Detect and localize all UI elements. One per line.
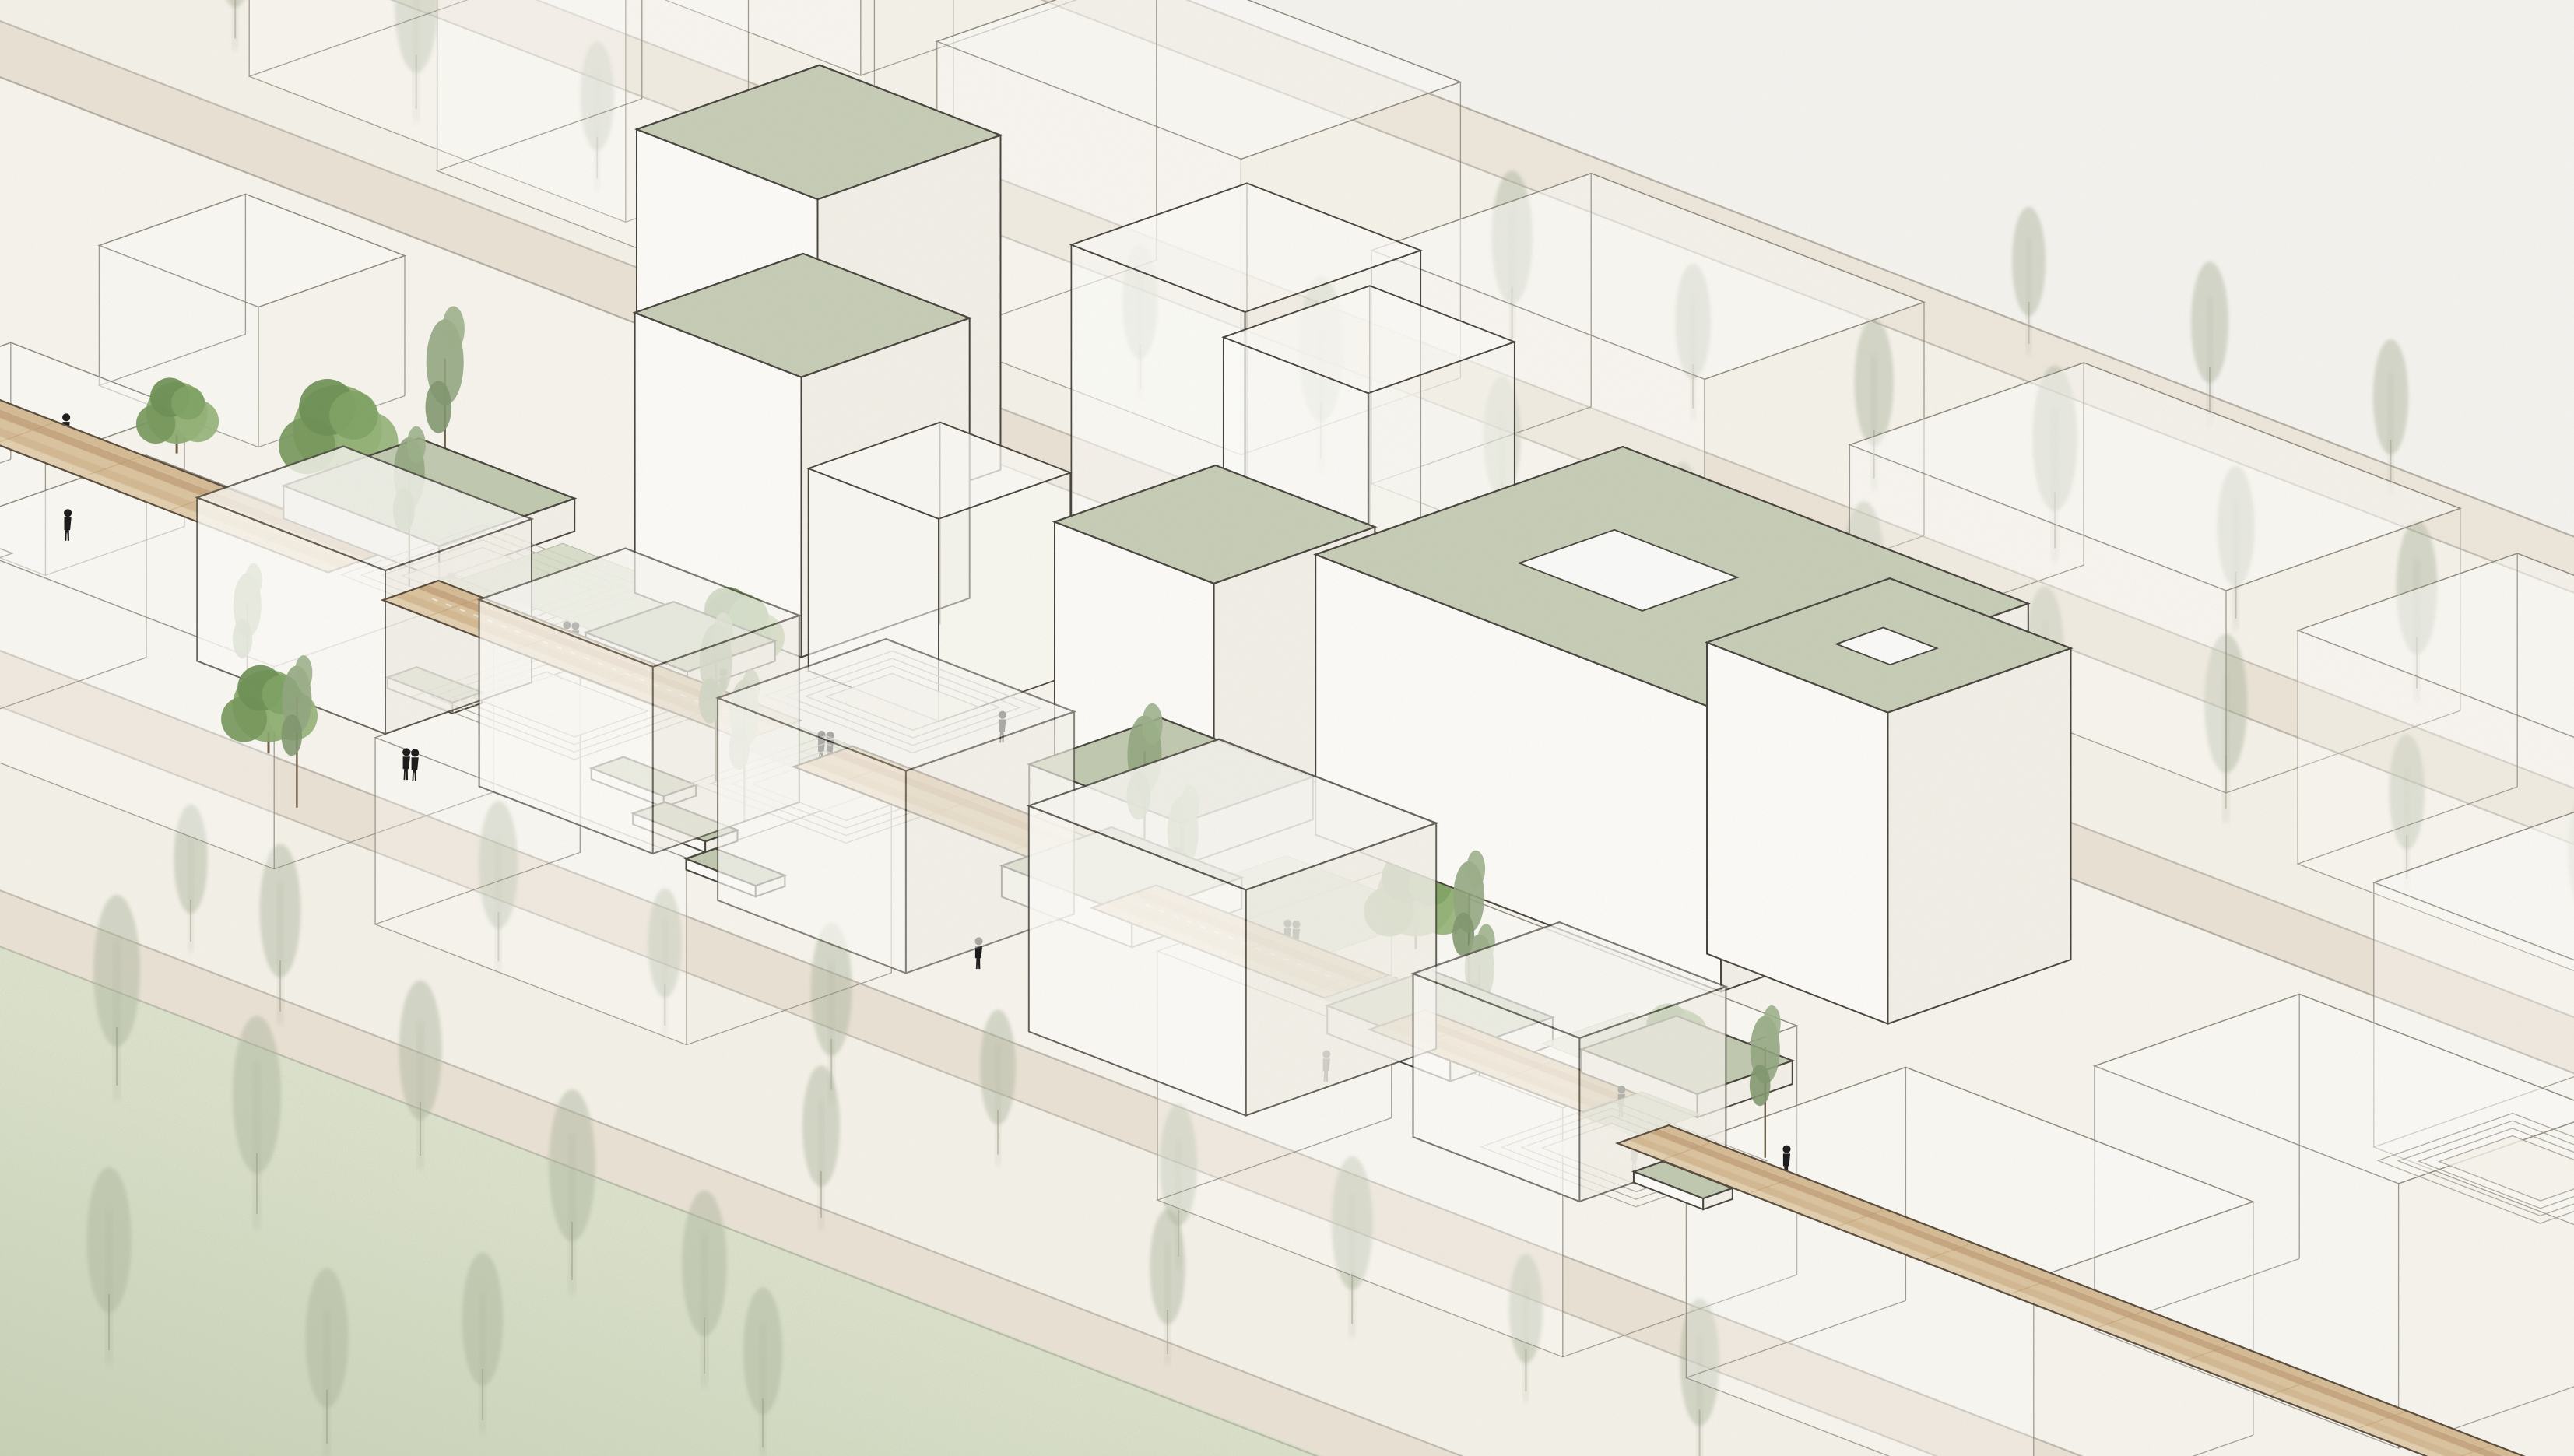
paper-grain-overlay [0, 0, 2574, 1456]
architectural-axonometric-rendering [0, 0, 2574, 1456]
paper-grain-layer [0, 0, 2574, 1456]
site-plan-canvas [0, 0, 2574, 1456]
